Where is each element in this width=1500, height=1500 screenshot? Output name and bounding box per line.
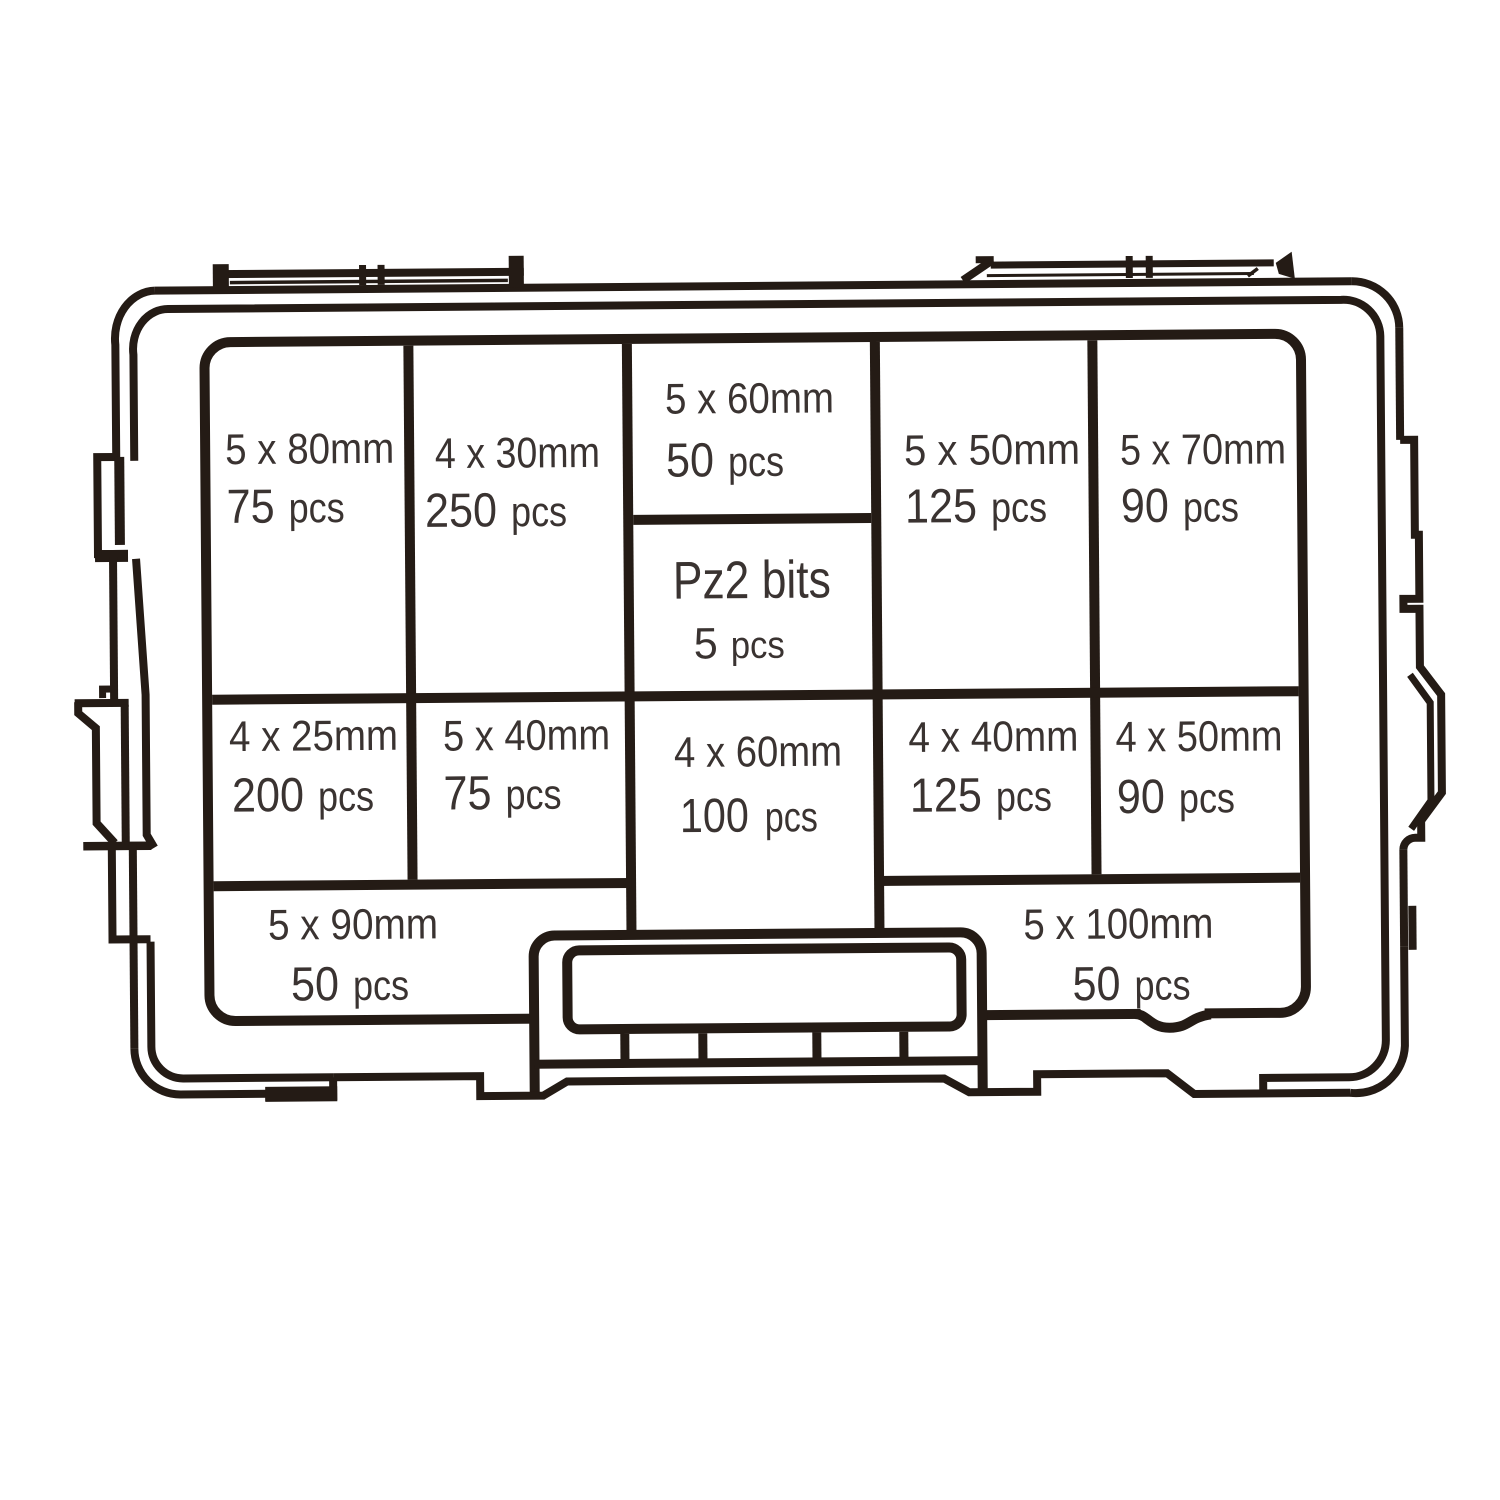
svg-text:250: 250 xyxy=(425,484,497,538)
svg-text:pcs: pcs xyxy=(1134,961,1190,1008)
svg-text:pcs: pcs xyxy=(505,771,561,818)
svg-text:pcs: pcs xyxy=(765,793,818,840)
svg-text:pcs: pcs xyxy=(1179,774,1235,821)
svg-text:100: 100 xyxy=(680,790,749,844)
svg-text:4 x 30mm: 4 x 30mm xyxy=(435,429,600,478)
svg-text:pcs: pcs xyxy=(996,773,1052,820)
svg-text:90: 90 xyxy=(1121,480,1169,533)
svg-text:5 x 80mm: 5 x 80mm xyxy=(225,425,394,474)
svg-text:50: 50 xyxy=(666,434,714,487)
svg-text:75: 75 xyxy=(443,767,491,820)
svg-text:50: 50 xyxy=(1072,958,1120,1011)
svg-text:4 x 60mm: 4 x 60mm xyxy=(674,728,842,777)
svg-text:5 x 40mm: 5 x 40mm xyxy=(443,711,610,760)
svg-text:5: 5 xyxy=(694,619,718,668)
svg-text:125: 125 xyxy=(905,480,977,534)
svg-text:90: 90 xyxy=(1117,771,1165,824)
svg-text:5 x 50mm: 5 x 50mm xyxy=(904,426,1080,475)
svg-text:75: 75 xyxy=(226,481,274,534)
svg-text:pcs: pcs xyxy=(1183,483,1239,530)
svg-text:pcs: pcs xyxy=(511,488,567,535)
svg-text:4 x 40mm: 4 x 40mm xyxy=(908,713,1078,762)
svg-text:5 x 100mm: 5 x 100mm xyxy=(1023,900,1213,949)
svg-text:pcs: pcs xyxy=(318,772,374,819)
svg-text:50: 50 xyxy=(291,958,339,1011)
svg-text:125: 125 xyxy=(910,769,982,823)
svg-text:pcs: pcs xyxy=(288,484,344,531)
svg-text:pcs: pcs xyxy=(353,962,409,1009)
svg-text:4 x 25mm: 4 x 25mm xyxy=(229,712,398,761)
svg-text:pcs: pcs xyxy=(731,625,785,667)
svg-text:5 x 70mm: 5 x 70mm xyxy=(1120,425,1286,474)
svg-text:Pz2 bits: Pz2 bits xyxy=(673,550,831,610)
svg-text:5 x 90mm: 5 x 90mm xyxy=(268,900,438,949)
svg-text:5 x 60mm: 5 x 60mm xyxy=(665,374,834,423)
svg-text:pcs: pcs xyxy=(991,483,1047,530)
svg-text:4 x 50mm: 4 x 50mm xyxy=(1115,712,1282,761)
svg-text:200: 200 xyxy=(232,769,304,823)
svg-text:pcs: pcs xyxy=(728,438,784,485)
